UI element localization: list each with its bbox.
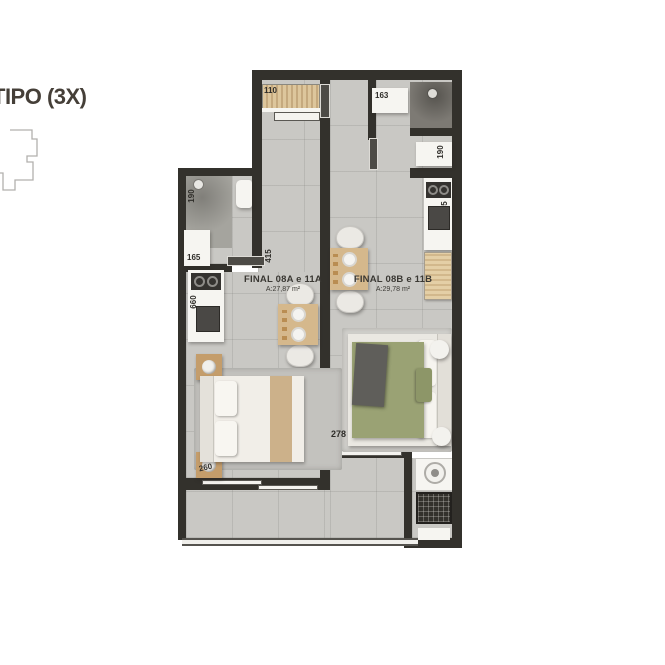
bed-runner-a <box>270 376 292 462</box>
bath-a-door-leaf <box>227 256 265 266</box>
dim-vanity-a: 165 <box>187 254 200 262</box>
closet-shelf-edge <box>262 108 320 112</box>
burner <box>439 185 449 195</box>
bed-a <box>200 376 304 462</box>
wall-bath-b-mid <box>410 128 452 136</box>
chair-a-bottom <box>286 344 314 367</box>
pillow <box>215 381 237 416</box>
unit-b-area: A:29,78 m² <box>338 286 448 294</box>
shower-b <box>410 82 452 128</box>
dim-bath-b: 163 <box>375 92 388 100</box>
dim-bench-b: 190 <box>437 141 445 163</box>
toilet-a <box>236 180 252 208</box>
washer-drum <box>431 469 439 477</box>
table-runner-dots <box>282 310 287 340</box>
sink-a <box>196 306 220 332</box>
service-shaft <box>416 492 452 524</box>
wall-top <box>252 70 462 80</box>
green-pillow-b <box>416 368 432 402</box>
unit-b-name: FINAL 08B e 11B <box>338 275 448 286</box>
cooktop-b <box>426 182 451 198</box>
sink-b <box>428 206 450 230</box>
wall-bath-a-top <box>178 168 262 176</box>
shower-head-b <box>428 89 437 98</box>
lamp <box>202 360 216 374</box>
unit-a-name: FINAL 08A e 11A <box>228 275 338 286</box>
nightstand-b-top <box>430 340 449 359</box>
floor-balcony-right <box>330 458 404 538</box>
bench-b <box>416 142 452 166</box>
dining-table-a <box>278 304 318 345</box>
chair-b-top <box>336 226 364 249</box>
plan-type-title: TIPO (3X) <box>0 84 87 110</box>
unit-b-label: FINAL 08B e 11B A:29,78 m² <box>338 275 448 294</box>
plate <box>291 327 306 342</box>
washer <box>424 462 446 484</box>
balcony-door-a-1 <box>202 480 262 485</box>
closet-door-a <box>274 112 320 121</box>
wall-laundry-left <box>404 448 412 540</box>
plate <box>291 307 306 322</box>
cooktop-a <box>191 273 221 290</box>
plate <box>342 252 357 267</box>
wall-right <box>452 70 462 548</box>
unit-a-label: FINAL 08A e 11A A:27,87 m² <box>228 275 338 294</box>
headboard-a <box>200 376 214 462</box>
wall-bench-b-south <box>410 168 452 178</box>
nightstand-b-bottom <box>432 427 451 446</box>
burner <box>207 276 218 287</box>
burner <box>428 185 438 195</box>
entry-door-leaf <box>320 84 330 118</box>
balcony-railing <box>182 538 418 546</box>
dim-closet-a: 110 <box>264 87 277 95</box>
pillow <box>215 421 237 456</box>
dim-bath-a-door: 415 <box>265 245 273 267</box>
burner <box>194 276 205 287</box>
blanket-gray-b <box>352 343 388 407</box>
dim-bed-b: 278 <box>331 430 346 439</box>
shaft-access <box>418 528 450 540</box>
keyplan-outline <box>0 126 46 196</box>
dim-shower-a: 190 <box>188 185 196 207</box>
bath-b-door-leaf <box>369 138 378 170</box>
unit-a-area: A:27,87 m² <box>228 286 338 294</box>
balcony-door-a-2 <box>258 485 318 490</box>
floorplan-page: TIPO (3X) 110 190 165 415 <box>0 0 665 665</box>
